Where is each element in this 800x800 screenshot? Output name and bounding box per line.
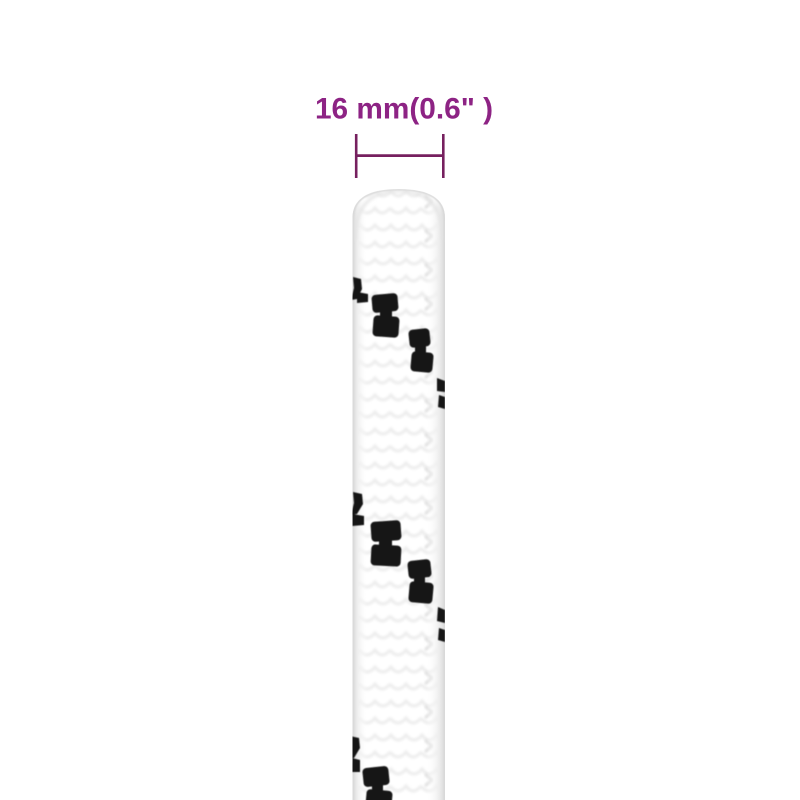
svg-text:16 mm(0.6" ): 16 mm(0.6" ): [315, 93, 493, 126]
